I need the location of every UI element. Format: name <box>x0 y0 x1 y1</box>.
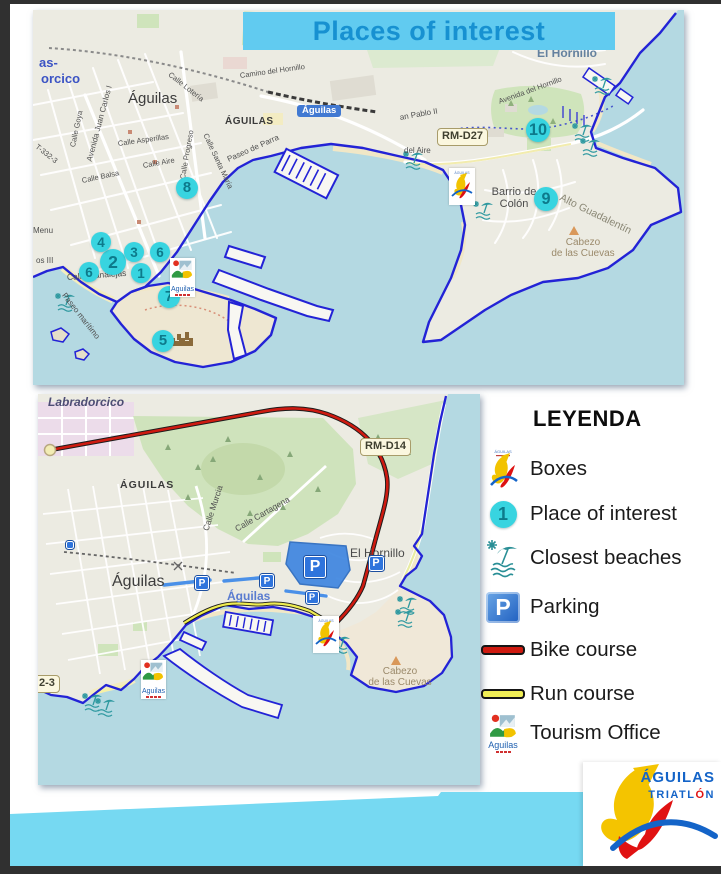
legend-row-run: Run course <box>481 682 635 706</box>
tourism-logo-text: Aguilas <box>142 688 165 695</box>
map-label: Cabezo de las Cuevas <box>358 666 442 688</box>
parking-marker: P <box>304 556 326 578</box>
poi-marker-10: 10 <box>526 118 550 142</box>
course-map: LabradorcicoÁGUILASÁguilasCalle MurciaCa… <box>38 394 480 785</box>
legend-label: Closest beaches <box>530 546 682 570</box>
triathlon-club-logo: ÁGUILAS TRIATLÓN <box>583 762 721 866</box>
water-label: Águilas <box>227 590 270 603</box>
legend-row-place: 1 Place of interest <box>481 492 677 536</box>
road-ref-badge: RM-D27 <box>437 128 488 146</box>
tourism-logo-icon: Aguilas <box>481 713 525 753</box>
tourism-logo-text: Aguilas <box>488 741 518 750</box>
parking-marker: P <box>369 556 384 571</box>
page-title: Places of interest <box>243 12 615 50</box>
roundabout <box>45 445 56 456</box>
legend-row-boxes: ÁGUILAS Boxes <box>481 446 587 492</box>
legend-title: LEYENDA <box>533 406 642 432</box>
beach-icon <box>481 538 525 578</box>
tourism-office-logo: Aguilas <box>170 258 195 297</box>
poi-marker-6: 6 <box>150 242 170 262</box>
parking-marker: P <box>195 576 209 590</box>
poi-marker-3: 3 <box>124 242 144 262</box>
road-ref-badge: RM-D14 <box>360 438 411 456</box>
logo-text-aguilas: ÁGUILAS <box>641 769 716 786</box>
legend-label: Boxes <box>530 457 587 481</box>
map-label: Labradorcico <box>48 396 124 409</box>
map-label: ÁGUILAS <box>120 480 174 492</box>
map-label: Menu <box>33 227 53 236</box>
poi-marker-2: 2 <box>100 249 126 275</box>
viewer-frame <box>0 866 721 874</box>
legend-label: Parking <box>530 595 600 619</box>
city-label: Águilas <box>112 573 164 591</box>
viewer-frame <box>0 0 721 4</box>
road-ref-badge: 2-3 <box>38 675 60 693</box>
legend-row-beaches: Closest beaches <box>481 537 682 579</box>
station-label: Águilas <box>297 105 341 117</box>
legend-row-bike: Bike course <box>481 638 637 662</box>
overview-map: as-orcicoÁguilasÁGUILASÁguilasEl Hornill… <box>33 10 684 385</box>
tourism-office-logo: Aguilas <box>141 660 166 699</box>
legend-label: Bike course <box>530 638 637 662</box>
legend-label: Tourism Office <box>530 721 661 745</box>
parking-marker <box>66 541 74 549</box>
city-label: Águilas <box>128 91 177 108</box>
triathlon-boxes-logo: ÁGUILAS <box>449 168 475 205</box>
bike-line-icon <box>481 645 525 655</box>
run-line-icon <box>481 689 525 699</box>
legend-label: Place of interest <box>530 502 677 526</box>
tourism-logo-text: Aguilas <box>171 286 194 293</box>
map-label: Cabezo de las Cuevas <box>541 237 625 259</box>
place-marker-icon: 1 <box>490 501 517 528</box>
overview-map-graphic <box>33 10 684 385</box>
document-page: as-orcicoÁguilasÁGUILASÁguilasEl Hornill… <box>0 0 721 874</box>
parking-marker: P <box>260 574 274 588</box>
poi-marker-8: 8 <box>176 177 198 199</box>
svg-text:TRIATLÓN: TRIATLÓN <box>648 788 715 801</box>
legend-label: Run course <box>530 682 635 706</box>
map-label: as- <box>39 56 58 70</box>
poi-marker-9: 9 <box>534 187 558 211</box>
map-label: os III <box>36 257 53 266</box>
parking-icon: P <box>486 592 520 623</box>
triathlon-boxes-icon: ÁGUILAS <box>481 447 525 491</box>
viewer-frame <box>0 0 10 874</box>
parking-marker: P <box>306 591 319 604</box>
poi-marker-6: 6 <box>79 262 99 282</box>
legend-row-parking: P Parking <box>481 586 600 628</box>
legend-row-tourism: Aguilas Tourism Office <box>481 710 661 756</box>
map-label: ÁGUILAS <box>225 116 274 127</box>
map-label: orcico <box>41 72 80 86</box>
poi-marker-5: 5 <box>152 330 174 352</box>
poi-marker-1: 1 <box>131 263 151 283</box>
triathlon-boxes-logo: ÁGUILAS <box>313 616 339 653</box>
poi-marker-4: 4 <box>91 232 111 252</box>
map-label: del Aire <box>404 147 431 156</box>
